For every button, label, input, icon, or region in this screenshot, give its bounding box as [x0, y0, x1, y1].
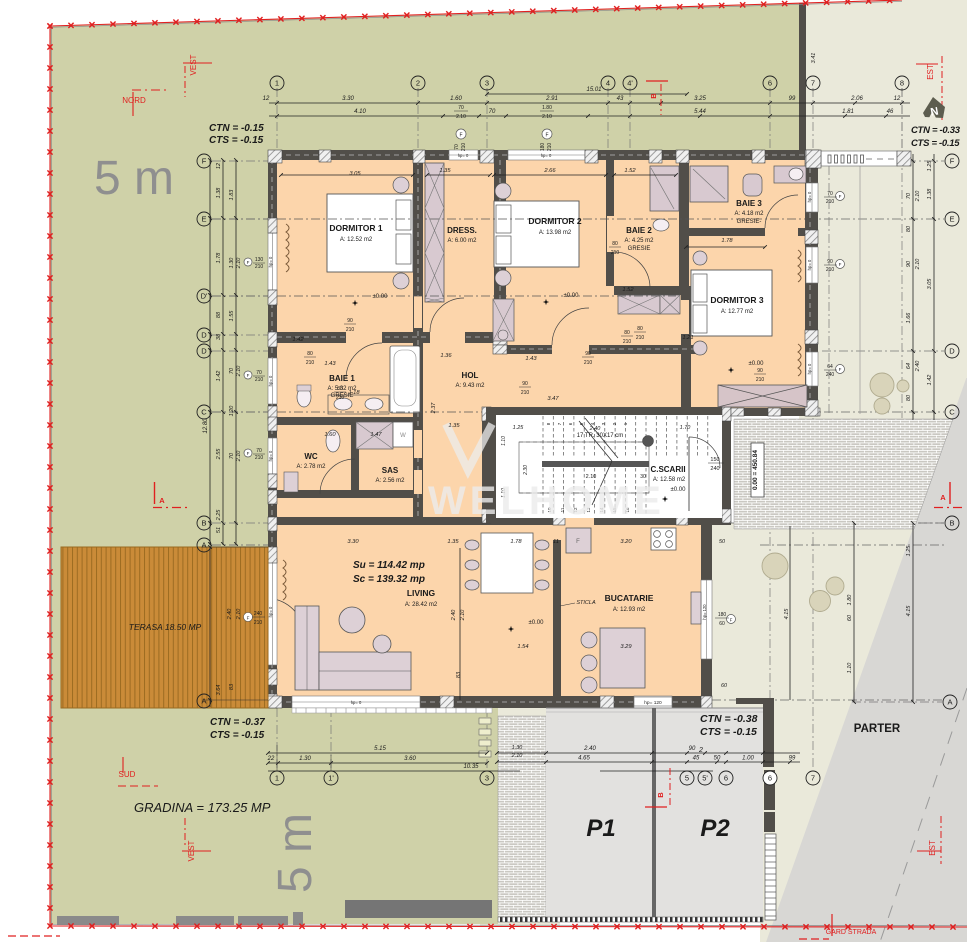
svg-text:A: 6.00 m2: A: 6.00 m2 — [447, 238, 477, 244]
svg-text:CTN = -0.33: CTN = -0.33 — [911, 125, 961, 136]
svg-text:F: F — [202, 157, 207, 166]
svg-text:F: F — [839, 262, 842, 267]
svg-text:CTN = -0.38: CTN = -0.38 — [700, 713, 758, 725]
svg-text:1.00: 1.00 — [742, 756, 754, 762]
svg-text:3.05: 3.05 — [349, 171, 361, 177]
svg-text:±0.00: ±0.00 — [671, 487, 687, 493]
svg-text:GRESIE-: GRESIE- — [737, 219, 762, 225]
svg-text:210: 210 — [521, 390, 530, 396]
svg-text:51: 51 — [216, 527, 222, 533]
svg-text:1.55: 1.55 — [229, 310, 235, 322]
svg-text:5 m: 5 m — [269, 813, 322, 893]
svg-text:GRADINA = 173.25 MP: GRADINA = 173.25 MP — [134, 800, 271, 815]
svg-text:1.47: 1.47 — [370, 432, 382, 438]
svg-text:F: F — [950, 157, 955, 166]
svg-text:hp= 0: hp= 0 — [458, 153, 469, 158]
svg-text:WC: WC — [304, 452, 318, 461]
svg-text:EST: EST — [926, 64, 935, 80]
svg-text:C: C — [201, 408, 207, 417]
svg-text:C: C — [949, 408, 955, 417]
svg-text:3.60: 3.60 — [404, 756, 416, 762]
svg-text:43: 43 — [617, 96, 624, 102]
svg-text:2.06: 2.06 — [850, 96, 863, 102]
svg-text:CTS = -0.15: CTS = -0.15 — [911, 138, 960, 149]
svg-text:A: 28.42 m2: A: 28.42 m2 — [405, 602, 438, 608]
svg-text:2.10: 2.10 — [511, 753, 524, 759]
svg-text:hp= 0: hp= 0 — [268, 606, 273, 617]
svg-text:A: 9.43 m2: A: 9.43 m2 — [455, 383, 485, 389]
svg-text:3: 3 — [485, 79, 489, 88]
svg-text:80: 80 — [612, 241, 618, 247]
svg-text:1.43: 1.43 — [525, 356, 537, 362]
svg-text:CTN = -0.37: CTN = -0.37 — [210, 717, 265, 728]
svg-text:E: E — [949, 215, 954, 224]
svg-text:2.30: 2.30 — [523, 465, 529, 476]
svg-text:A: A — [947, 698, 952, 707]
svg-text:1.43: 1.43 — [324, 361, 336, 367]
svg-text:2: 2 — [416, 79, 420, 88]
svg-text:150: 150 — [710, 457, 719, 463]
svg-text:210: 210 — [611, 250, 620, 256]
svg-text:CTS = -0.15: CTS = -0.15 — [700, 726, 757, 738]
svg-text:50: 50 — [719, 539, 726, 545]
svg-text:LIVING: LIVING — [407, 588, 436, 598]
svg-text:1.36: 1.36 — [440, 353, 452, 359]
svg-text:70: 70 — [458, 105, 464, 111]
svg-text:80: 80 — [637, 326, 643, 332]
svg-text:1.35: 1.35 — [447, 539, 459, 545]
svg-text:2.25: 2.25 — [216, 509, 222, 522]
svg-text:1.42: 1.42 — [927, 375, 933, 386]
svg-text:DORMITOR 3: DORMITOR 3 — [710, 295, 763, 305]
svg-text:BUCATARIE: BUCATARIE — [605, 593, 654, 603]
svg-text:4.15: 4.15 — [906, 605, 912, 617]
svg-text:A: A — [940, 493, 946, 502]
svg-text:240: 240 — [710, 466, 719, 472]
svg-text:B: B — [649, 93, 658, 99]
svg-text:6: 6 — [768, 79, 772, 88]
svg-text:W: W — [400, 433, 406, 439]
svg-text:±0.00: ±0.00 — [529, 620, 545, 626]
svg-text:hp= 0: hp= 0 — [807, 363, 812, 374]
svg-text:C.SCARII: C.SCARII — [650, 465, 685, 474]
svg-text:4.65: 4.65 — [578, 756, 590, 762]
svg-text:hp= 120: hp= 120 — [702, 604, 707, 620]
svg-text:1: 1 — [275, 774, 279, 783]
svg-text:210: 210 — [623, 339, 632, 345]
svg-text:90: 90 — [347, 318, 353, 324]
svg-text:4.10: 4.10 — [354, 109, 366, 115]
svg-text:5 m: 5 m — [94, 152, 174, 205]
svg-text:3: 3 — [485, 774, 489, 783]
svg-text:hp= 0: hp= 0 — [268, 375, 273, 386]
svg-text:1.21: 1.21 — [682, 335, 693, 341]
svg-text:90: 90 — [757, 368, 763, 374]
svg-text:A: 2.78 m2: A: 2.78 m2 — [296, 464, 326, 470]
svg-text:7: 7 — [811, 79, 815, 88]
svg-text:WELHOME: WELHOME — [428, 479, 665, 523]
svg-text:180: 180 — [540, 143, 546, 152]
svg-text:CTN = -0.15: CTN = -0.15 — [209, 123, 264, 134]
svg-text:2.10: 2.10 — [915, 258, 921, 271]
svg-text:SAS: SAS — [382, 466, 399, 475]
svg-text:210: 210 — [461, 143, 467, 152]
svg-text:210: 210 — [255, 455, 264, 461]
svg-text:240: 240 — [826, 372, 835, 378]
svg-text:BAIE 2: BAIE 2 — [626, 226, 652, 235]
svg-text:12: 12 — [216, 163, 222, 169]
svg-text:88: 88 — [216, 311, 222, 318]
svg-text:2.10: 2.10 — [236, 257, 242, 270]
svg-text:80: 80 — [337, 386, 343, 392]
svg-text:Su = 114.42 mp: Su = 114.42 mp — [353, 560, 425, 571]
svg-text:hp= 120: hp= 120 — [644, 700, 662, 706]
svg-text:2.66: 2.66 — [543, 168, 556, 174]
svg-text:90: 90 — [522, 381, 528, 387]
svg-text:210: 210 — [547, 143, 553, 152]
svg-text:1.35: 1.35 — [448, 423, 460, 429]
svg-text:F: F — [576, 539, 580, 545]
svg-text:99: 99 — [789, 96, 796, 102]
svg-text:F: F — [839, 194, 842, 199]
svg-text:F: F — [247, 451, 250, 456]
svg-text:2.40: 2.40 — [915, 360, 921, 373]
svg-text:2.10: 2.10 — [236, 608, 242, 621]
svg-text:BAIE 3: BAIE 3 — [736, 199, 762, 208]
svg-text:A: 12.77 m2: A: 12.77 m2 — [721, 309, 754, 315]
svg-text:1: 1 — [275, 79, 279, 88]
svg-text:1.66: 1.66 — [906, 312, 912, 324]
svg-text:E: E — [201, 215, 206, 224]
svg-text:1.30: 1.30 — [229, 257, 235, 269]
svg-text:EST: EST — [928, 840, 937, 856]
svg-text:210: 210 — [756, 377, 765, 383]
svg-text:6: 6 — [724, 774, 728, 783]
svg-text:3.25: 3.25 — [694, 96, 706, 102]
svg-text:1.10: 1.10 — [501, 436, 507, 446]
svg-text:210: 210 — [255, 264, 264, 270]
svg-text:3.41: 3.41 — [811, 53, 817, 64]
svg-text:64: 64 — [906, 363, 912, 369]
svg-text:Sc = 139.32 mp: Sc = 139.32 mp — [353, 574, 425, 585]
svg-text:45: 45 — [693, 756, 700, 762]
svg-text:DORMITOR 2: DORMITOR 2 — [528, 216, 581, 226]
svg-text:210: 210 — [584, 360, 593, 366]
svg-text:F: F — [459, 133, 462, 139]
svg-text:CTS = -0.15: CTS = -0.15 — [209, 135, 264, 146]
svg-text:83: 83 — [456, 671, 462, 678]
svg-text:210: 210 — [306, 360, 315, 366]
svg-text:1.38: 1.38 — [216, 187, 222, 199]
svg-text:GARD STRADA: GARD STRADA — [826, 929, 877, 936]
svg-text:VEST: VEST — [189, 54, 198, 75]
svg-text:64: 64 — [827, 364, 833, 370]
svg-text:2.55: 2.55 — [216, 448, 222, 461]
svg-text:hp= 0: hp= 0 — [807, 191, 812, 202]
svg-text:D: D — [201, 331, 207, 340]
svg-text:STICLA: STICLA — [576, 600, 596, 606]
svg-text:11: 11 — [553, 539, 559, 545]
svg-text:80: 80 — [624, 330, 630, 336]
svg-text:A: 4.25 m2: A: 4.25 m2 — [624, 238, 654, 244]
svg-text:60: 60 — [721, 683, 728, 689]
svg-text:B: B — [201, 519, 206, 528]
svg-text:80: 80 — [906, 225, 912, 232]
svg-text:2.91: 2.91 — [545, 96, 558, 102]
svg-text:2.10: 2.10 — [236, 450, 242, 463]
svg-text:1.42: 1.42 — [292, 337, 304, 343]
svg-text:0.00 = 450.84: 0.00 = 450.84 — [752, 450, 759, 490]
svg-text:1.25: 1.25 — [513, 425, 525, 431]
svg-text:P1: P1 — [586, 815, 615, 842]
svg-text:80: 80 — [906, 394, 912, 401]
svg-text:BAIE 1: BAIE 1 — [329, 374, 355, 383]
svg-text:CTS = -0.15: CTS = -0.15 — [210, 730, 265, 741]
svg-text:210: 210 — [636, 335, 645, 341]
svg-text:3.29: 3.29 — [620, 644, 632, 650]
svg-text:3.30: 3.30 — [347, 539, 359, 545]
svg-text:99: 99 — [789, 756, 796, 762]
svg-text:hp= 0: hp= 0 — [351, 700, 362, 705]
svg-text:A: 12.93 m2: A: 12.93 m2 — [613, 607, 646, 613]
svg-text:70: 70 — [229, 367, 235, 374]
svg-text:1.78: 1.78 — [216, 252, 222, 264]
svg-text:5.15: 5.15 — [374, 746, 386, 752]
svg-text:50: 50 — [714, 756, 721, 762]
svg-text:70: 70 — [906, 192, 912, 199]
svg-text:70: 70 — [229, 452, 235, 459]
svg-text:SUD: SUD — [119, 770, 136, 779]
svg-text:F: F — [839, 367, 842, 372]
svg-text:F: F — [247, 260, 250, 265]
svg-text:F: F — [247, 616, 250, 621]
svg-text:70: 70 — [256, 370, 262, 376]
svg-text:12: 12 — [263, 96, 270, 102]
svg-text:240: 240 — [254, 611, 263, 617]
svg-text:NORD: NORD — [122, 96, 146, 105]
svg-text:TERASA 18.50 MP: TERASA 18.50 MP — [129, 622, 202, 632]
svg-text:5': 5' — [702, 774, 708, 783]
svg-text:90: 90 — [689, 746, 696, 752]
svg-text:22: 22 — [267, 756, 275, 762]
svg-text:2.40: 2.40 — [589, 426, 602, 432]
svg-text:80: 80 — [307, 351, 313, 357]
svg-text:1.60: 1.60 — [324, 432, 336, 438]
svg-text:60: 60 — [719, 621, 725, 627]
svg-text:B: B — [656, 792, 665, 798]
svg-text:2.40: 2.40 — [583, 746, 596, 752]
svg-text:GRESIE: GRESIE — [628, 246, 651, 252]
svg-text:2.37: 2.37 — [431, 402, 437, 415]
svg-text:210: 210 — [336, 395, 345, 401]
svg-text:3.05: 3.05 — [927, 278, 933, 290]
svg-text:210: 210 — [346, 327, 355, 333]
svg-text:17 TR. 30X17 cm: 17 TR. 30X17 cm — [577, 433, 624, 439]
svg-text:90: 90 — [906, 260, 912, 267]
svg-text:1.25: 1.25 — [927, 160, 933, 172]
svg-text:2.40: 2.40 — [227, 608, 233, 621]
svg-text:2.10: 2.10 — [460, 609, 466, 622]
svg-text:180: 180 — [718, 612, 727, 618]
svg-text:D: D — [201, 347, 207, 356]
svg-text:D: D — [949, 347, 955, 356]
svg-text:1.35: 1.35 — [439, 168, 451, 174]
svg-text:A: A — [201, 697, 206, 706]
svg-text:12: 12 — [894, 96, 901, 102]
svg-text:1.81: 1.81 — [842, 109, 854, 115]
svg-text:3.64: 3.64 — [216, 685, 222, 696]
svg-text:hp= 0: hp= 0 — [541, 153, 552, 158]
svg-text:1.54: 1.54 — [517, 644, 528, 650]
svg-text:210: 210 — [826, 199, 835, 205]
svg-text:2.40: 2.40 — [451, 609, 457, 622]
svg-text:210: 210 — [826, 267, 835, 273]
svg-text:1.10: 1.10 — [847, 662, 853, 674]
svg-text:4: 4 — [606, 79, 610, 88]
svg-text:2.10: 2.10 — [915, 190, 921, 203]
svg-text:7: 7 — [811, 774, 815, 783]
svg-text:4': 4' — [627, 79, 633, 88]
svg-text:PARTER: PARTER — [854, 723, 901, 735]
svg-text:70: 70 — [256, 448, 262, 454]
svg-text:A: 12.52 m2: A: 12.52 m2 — [340, 237, 373, 243]
svg-text:6: 6 — [768, 774, 772, 783]
svg-text:F: F — [545, 133, 548, 139]
svg-text:1.42: 1.42 — [216, 371, 222, 382]
svg-text:A: A — [159, 496, 165, 505]
svg-text:3.30: 3.30 — [342, 96, 354, 102]
svg-text:2.10: 2.10 — [456, 114, 466, 120]
svg-text:5.44: 5.44 — [694, 109, 706, 115]
svg-text:15.01: 15.01 — [586, 87, 601, 93]
svg-text:38: 38 — [216, 333, 222, 340]
svg-text:A: A — [201, 541, 206, 550]
svg-text:D': D' — [201, 292, 208, 301]
svg-text:83: 83 — [229, 683, 235, 690]
svg-text:1.25: 1.25 — [906, 545, 912, 557]
svg-text:90: 90 — [585, 351, 591, 357]
svg-text:2.10: 2.10 — [542, 114, 552, 120]
svg-text:1.80: 1.80 — [542, 105, 552, 111]
svg-text:3.20: 3.20 — [620, 539, 632, 545]
svg-text:1.80: 1.80 — [847, 594, 853, 606]
svg-text:1.30: 1.30 — [299, 756, 311, 762]
svg-text:1.78: 1.78 — [510, 539, 522, 545]
svg-text:hp= 0: hp= 0 — [268, 256, 273, 267]
svg-text:3.47: 3.47 — [547, 396, 559, 402]
svg-text:12.80: 12.80 — [203, 418, 209, 434]
svg-text:2: 2 — [698, 747, 703, 754]
svg-text:B: B — [949, 519, 954, 528]
svg-text:±0.00: ±0.00 — [564, 293, 580, 299]
svg-text:±0.00: ±0.00 — [373, 294, 389, 300]
svg-text:1.78: 1.78 — [721, 238, 733, 244]
svg-text:A: 4.18 m2: A: 4.18 m2 — [734, 211, 764, 217]
svg-text:70: 70 — [827, 191, 833, 197]
svg-text:210: 210 — [254, 620, 263, 626]
svg-text:hp= 0: hp= 0 — [807, 259, 812, 270]
svg-text:10.35: 10.35 — [463, 764, 479, 770]
svg-text:A: 13.98 m2: A: 13.98 m2 — [539, 230, 572, 236]
svg-text:210: 210 — [255, 377, 264, 383]
svg-text:1.60: 1.60 — [450, 96, 462, 102]
svg-text:1.83: 1.83 — [229, 189, 235, 201]
svg-text:130: 130 — [255, 257, 264, 263]
svg-text:70: 70 — [454, 144, 460, 150]
svg-text:1.20: 1.20 — [229, 405, 235, 417]
svg-text:2.10: 2.10 — [236, 365, 242, 378]
svg-text:1.38: 1.38 — [927, 188, 933, 200]
svg-text:1.18: 1.18 — [348, 390, 360, 396]
svg-text:5: 5 — [685, 774, 689, 783]
svg-text:F: F — [730, 618, 733, 623]
svg-text:P2: P2 — [700, 815, 730, 842]
svg-text:46: 46 — [887, 109, 894, 115]
svg-text:1': 1' — [328, 774, 334, 783]
svg-text:±0.00: ±0.00 — [749, 361, 765, 367]
svg-text:1.52: 1.52 — [622, 287, 634, 293]
svg-text:70: 70 — [489, 109, 496, 115]
svg-text:hp= 0: hp= 0 — [268, 450, 273, 461]
svg-text:A: 2.56 m2: A: 2.56 m2 — [375, 478, 405, 484]
svg-text:60: 60 — [847, 614, 853, 621]
svg-text:DRESS.: DRESS. — [447, 226, 477, 235]
svg-text:1.52: 1.52 — [624, 168, 636, 174]
svg-text:1.70: 1.70 — [680, 425, 692, 431]
svg-text:90: 90 — [827, 259, 833, 265]
svg-text:DORMITOR 1: DORMITOR 1 — [329, 223, 382, 233]
svg-text:1.30: 1.30 — [512, 745, 524, 751]
svg-text:HOL: HOL — [462, 371, 479, 380]
svg-text:8: 8 — [900, 79, 904, 88]
svg-text:F: F — [247, 373, 250, 378]
svg-text:4.15: 4.15 — [784, 608, 790, 620]
